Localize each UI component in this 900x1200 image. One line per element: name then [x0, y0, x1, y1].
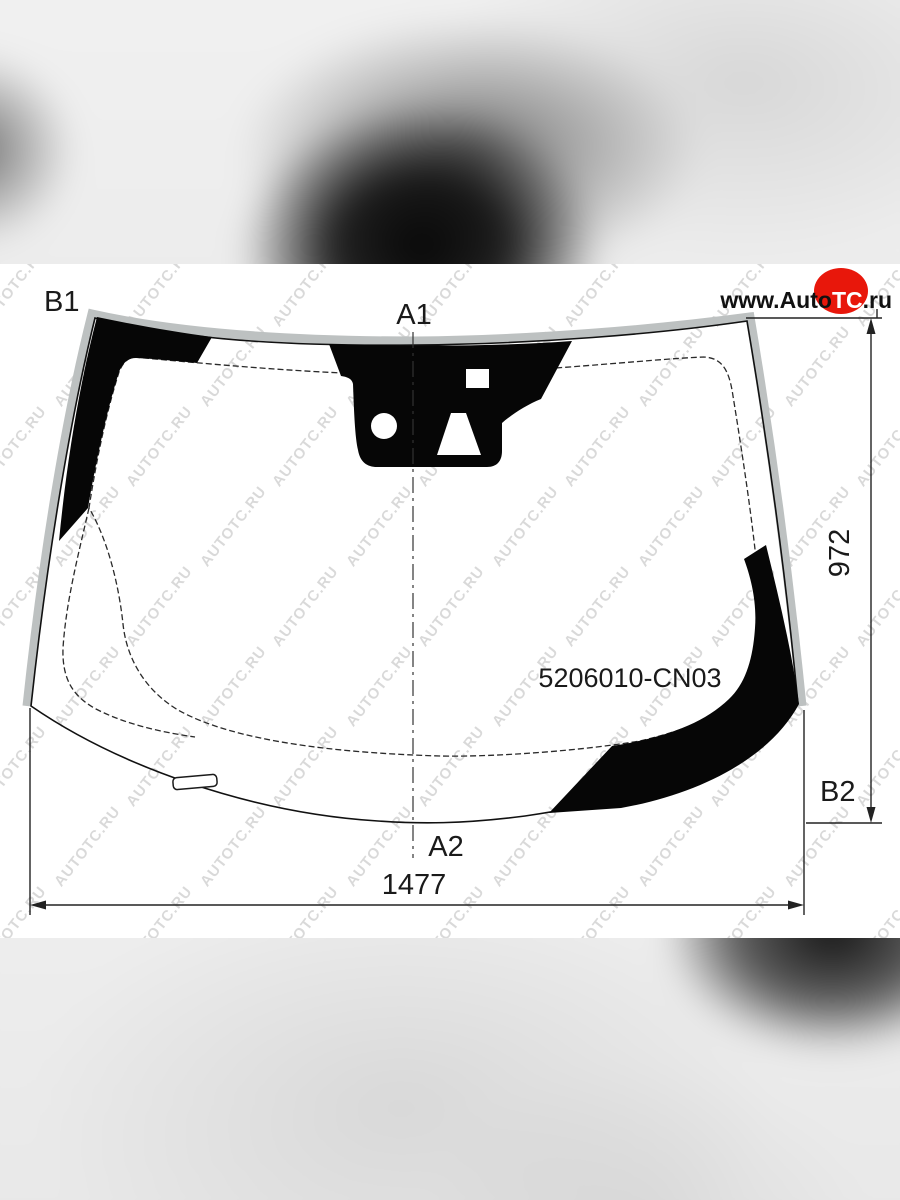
arrow-up-icon — [867, 318, 876, 334]
marker-a2: A2 — [428, 831, 463, 863]
marker-b1: B1 — [44, 286, 79, 318]
part-number-label: 5206010-CN03 — [538, 663, 721, 693]
svg-text:www.AutoTC.ru: www.AutoTC.ru — [719, 287, 892, 313]
dimension-height-label: 972 — [824, 529, 856, 577]
frit-inner-boundary-left-lower — [63, 508, 195, 737]
marker-a1: A1 — [396, 299, 431, 331]
logo-text-prefix: www.Auto — [719, 287, 832, 313]
arrow-left-icon — [30, 901, 46, 910]
logo-text-suffix: .ru — [863, 287, 892, 313]
dimension-width-label: 1477 — [382, 869, 447, 901]
site-logo: www.AutoTC.ru — [719, 268, 892, 314]
arrow-right-icon — [788, 901, 804, 910]
windshield-diagram: B1 A1 B2 A2 1477 972 5206010-CN03 www.Au… — [0, 0, 900, 1200]
arrow-down-icon — [867, 807, 876, 823]
rain-sensor-hole — [371, 413, 397, 439]
logo-text-highlight: TC — [832, 287, 863, 313]
marker-b2: B2 — [820, 776, 855, 808]
sensor-window-rect — [466, 369, 489, 388]
lower-slot — [173, 774, 218, 790]
